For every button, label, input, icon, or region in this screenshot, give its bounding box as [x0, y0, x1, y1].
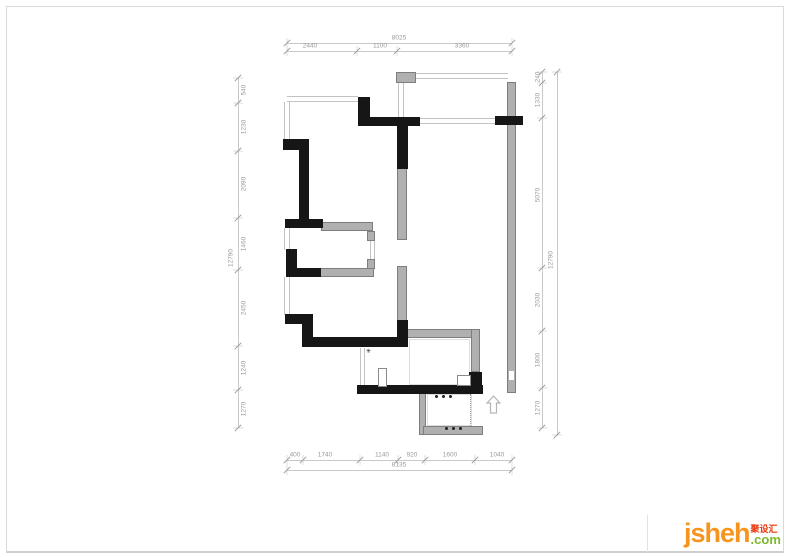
dim-line — [287, 51, 512, 52]
dim-value-label: 920 — [407, 452, 418, 459]
dim-value-label: 1600 — [443, 452, 457, 459]
dim-line — [557, 72, 558, 435]
dim-value-label: 8135 — [392, 462, 406, 469]
dim-value-label: 1270 — [535, 401, 542, 415]
dim-value-label: 2090 — [241, 177, 248, 191]
floorplan-page: ✳ 80252440110033604001740114092016001040… — [0, 0, 790, 557]
dim-value-label: 1230 — [241, 120, 248, 134]
dim-line — [238, 78, 239, 428]
dim-value-label: 1040 — [490, 452, 504, 459]
dim-value-label: 240 — [535, 72, 542, 83]
column-divider-line — [647, 515, 648, 552]
dim-line — [287, 470, 512, 471]
dim-value-label: 1270 — [241, 402, 248, 416]
watermark-domain-suffix: .com — [751, 534, 781, 546]
dim-value-label: 5070 — [535, 188, 542, 202]
dim-value-label: 1460 — [241, 237, 248, 251]
dim-value-label: 3360 — [455, 43, 469, 50]
dim-line — [287, 43, 512, 44]
dim-value-label: 2030 — [535, 293, 542, 307]
dim-value-label: 8025 — [392, 35, 406, 42]
dim-value-label: 2440 — [303, 43, 317, 50]
dim-value-label: 1740 — [318, 452, 332, 459]
dim-value-label: 1330 — [535, 93, 542, 107]
watermark-main-text: jsheh — [684, 520, 750, 546]
dim-value-label: 12790 — [548, 251, 555, 269]
dim-value-label: 400 — [290, 452, 301, 459]
dim-line — [542, 72, 543, 428]
dim-value-label: 2450 — [241, 301, 248, 315]
watermark-logo: jsheh 聚设汇 .com — [684, 520, 781, 546]
dim-value-label: 1240 — [241, 361, 248, 375]
dim-value-label: 1140 — [375, 452, 389, 459]
dim-overall-label: 12790 — [228, 249, 235, 267]
dim-value-label: 540 — [241, 85, 248, 96]
dim-value-label: 1100 — [373, 43, 387, 50]
watermark-right-column: 聚设汇 .com — [751, 525, 781, 546]
dimension-annotations: 8025244011003360400174011409201600104081… — [0, 0, 790, 557]
dim-value-label: 1800 — [535, 353, 542, 367]
